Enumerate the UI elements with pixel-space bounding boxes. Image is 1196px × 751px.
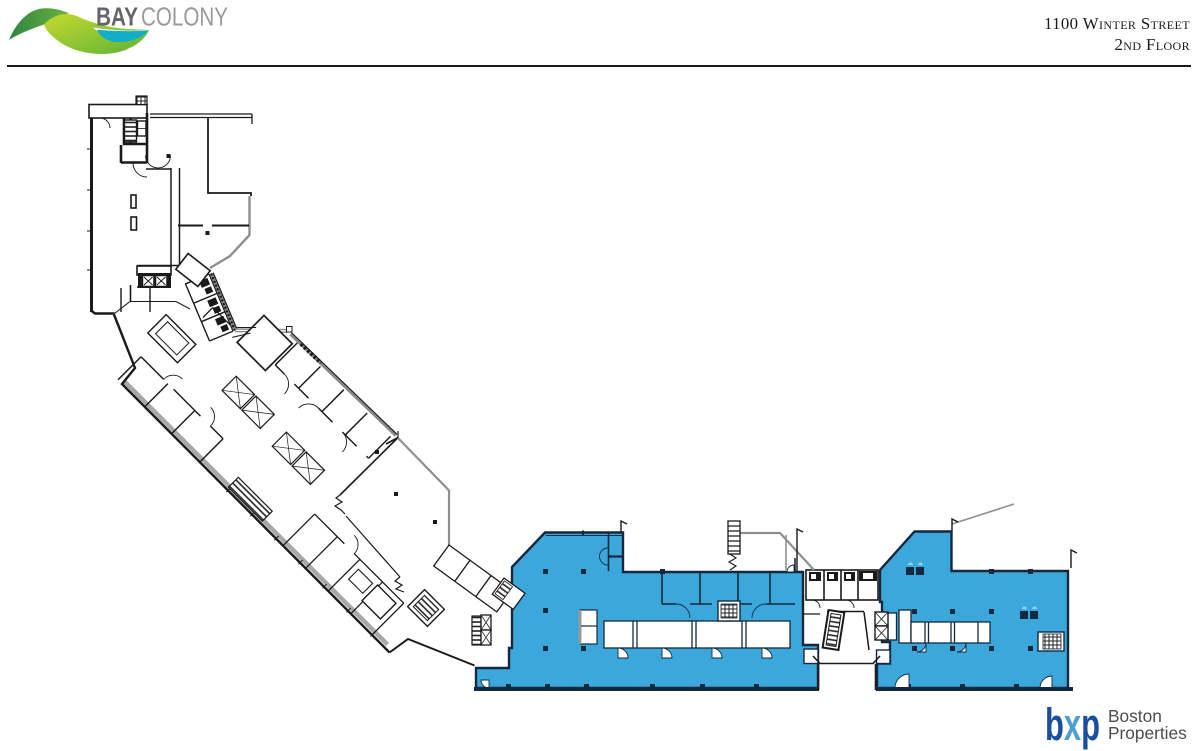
svg-text:bxp: bxp [1045, 702, 1100, 750]
